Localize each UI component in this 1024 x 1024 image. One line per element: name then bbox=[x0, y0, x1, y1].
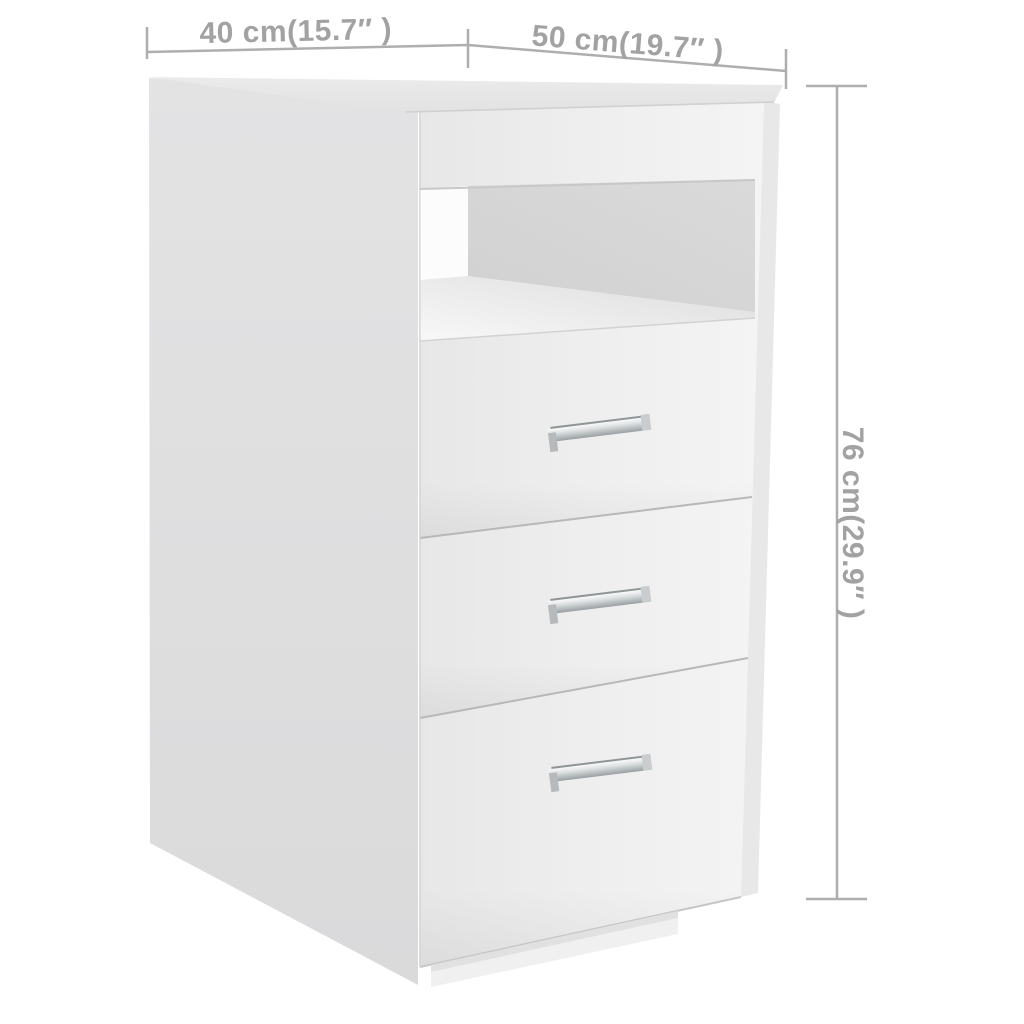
width-dimension-label: 50 cm(19.7″ ) bbox=[530, 19, 725, 67]
shelf-left-wall bbox=[420, 186, 468, 280]
open-shelf-compartment bbox=[420, 179, 755, 341]
depth-dimension-label: 40 cm(15.7″ ) bbox=[199, 13, 392, 50]
side-panel bbox=[149, 78, 418, 985]
product-diagram-stage: 40 cm(15.7″ ) 50 cm(19.7″ ) 76 cm(29.9″ … bbox=[0, 0, 1024, 1024]
height-dimension-label: 76 cm(29.9″ ) bbox=[836, 427, 869, 620]
cabinet bbox=[148, 77, 783, 987]
cabinet-dimension-diagram: 40 cm(15.7″ ) 50 cm(19.7″ ) 76 cm(29.9″ … bbox=[0, 0, 1024, 1024]
